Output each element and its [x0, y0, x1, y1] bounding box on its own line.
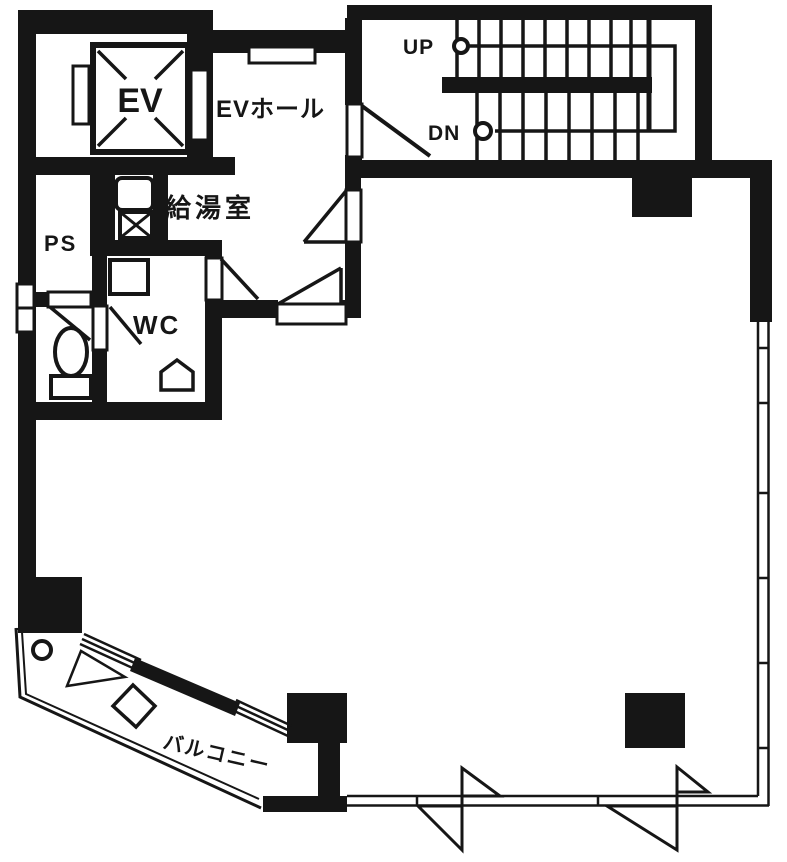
window-break-symbol-1: [418, 768, 500, 850]
stair-door-leaf: [347, 104, 362, 157]
bottom-right-pillar: [625, 693, 685, 748]
elevator-hall: EVホール: [216, 47, 325, 123]
elevator-label: EV: [117, 82, 163, 120]
elevator-left-rail: [73, 66, 89, 124]
stairwell: UP DN: [347, 20, 675, 160]
diagonal-window-2: [232, 700, 292, 736]
elevator-door-rail: [191, 70, 208, 140]
stair-pillar: [632, 163, 692, 217]
ev-top-wall: [18, 10, 212, 34]
hand-basin: [161, 360, 193, 390]
balcony-drain: [33, 641, 51, 659]
stair-up-marker: [454, 39, 468, 53]
stair-upper-treads: [457, 20, 631, 77]
wc-door-swing: [221, 259, 258, 299]
balcony: バルコニー: [16, 628, 292, 808]
main-right-wall: [750, 160, 772, 322]
wc-toilet-door-leaf: [93, 306, 107, 350]
kitchenette: 給湯室: [116, 178, 255, 238]
stair-lower-treads: [477, 93, 638, 160]
toilet-bowl: [55, 328, 87, 376]
diagonal-window-1: [80, 634, 141, 670]
stair-landing-bar: [442, 77, 652, 93]
stair-bottom-wall: [347, 160, 772, 178]
kitchen-sink: [116, 178, 153, 210]
balcony-corner-block: [18, 577, 82, 633]
vestibule-south-door-swing: [278, 268, 341, 304]
vestibule-east-door-leaf: [346, 190, 361, 242]
balcony-square-mark: [113, 685, 155, 727]
toilet-door-leaf: [48, 292, 91, 307]
right-window-wall: [758, 322, 769, 806]
vestibule-south-door-leaf: [277, 304, 346, 324]
balcony-outer-rail: [16, 628, 261, 808]
elevator-hall-label: EVホール: [216, 96, 325, 123]
wc-bottom-wall: [18, 402, 222, 420]
stair-dn-marker: [475, 123, 491, 139]
evhall-stair-wall-upper: [345, 18, 362, 105]
balcony-pillar: [287, 693, 347, 743]
stair-door-swing: [362, 106, 430, 156]
vestibule-east-door-swing: [304, 191, 346, 242]
bottom-window-wall: [347, 796, 769, 806]
stair-right-wall: [695, 5, 712, 178]
toilet-tank: [51, 376, 91, 398]
dn-label: DN: [428, 122, 460, 145]
evhall-window: [249, 47, 315, 63]
elevator: EV: [73, 45, 208, 152]
up-label: UP: [403, 36, 434, 59]
diagonal-wall-band: [130, 658, 240, 716]
ev-bottom-wall: [18, 157, 235, 175]
vestibule-south-wall: [215, 300, 278, 318]
window-break-symbol-2: [607, 767, 708, 850]
balcony-triangle-mark: [67, 651, 125, 686]
pipe-space-label: PS: [44, 231, 77, 256]
balcony-bottom-wall: [263, 796, 347, 812]
pipe-space: PS: [44, 231, 77, 256]
wc-door-leaf: [206, 258, 222, 300]
wc-counter: [110, 260, 148, 294]
niche-bottom-wall: [90, 240, 222, 256]
curtain-walls: [347, 322, 769, 850]
wc-label: WC: [133, 310, 180, 340]
kitchenette-label: 給湯室: [165, 193, 255, 223]
floor-plan-page: UP DN EV EVホール 給湯室 PS: [0, 0, 787, 862]
floor-plan: UP DN EV EVホール 給湯室 PS: [0, 0, 787, 862]
stair-top-wall: [347, 5, 712, 20]
balcony-pillar-stem: [318, 743, 340, 800]
